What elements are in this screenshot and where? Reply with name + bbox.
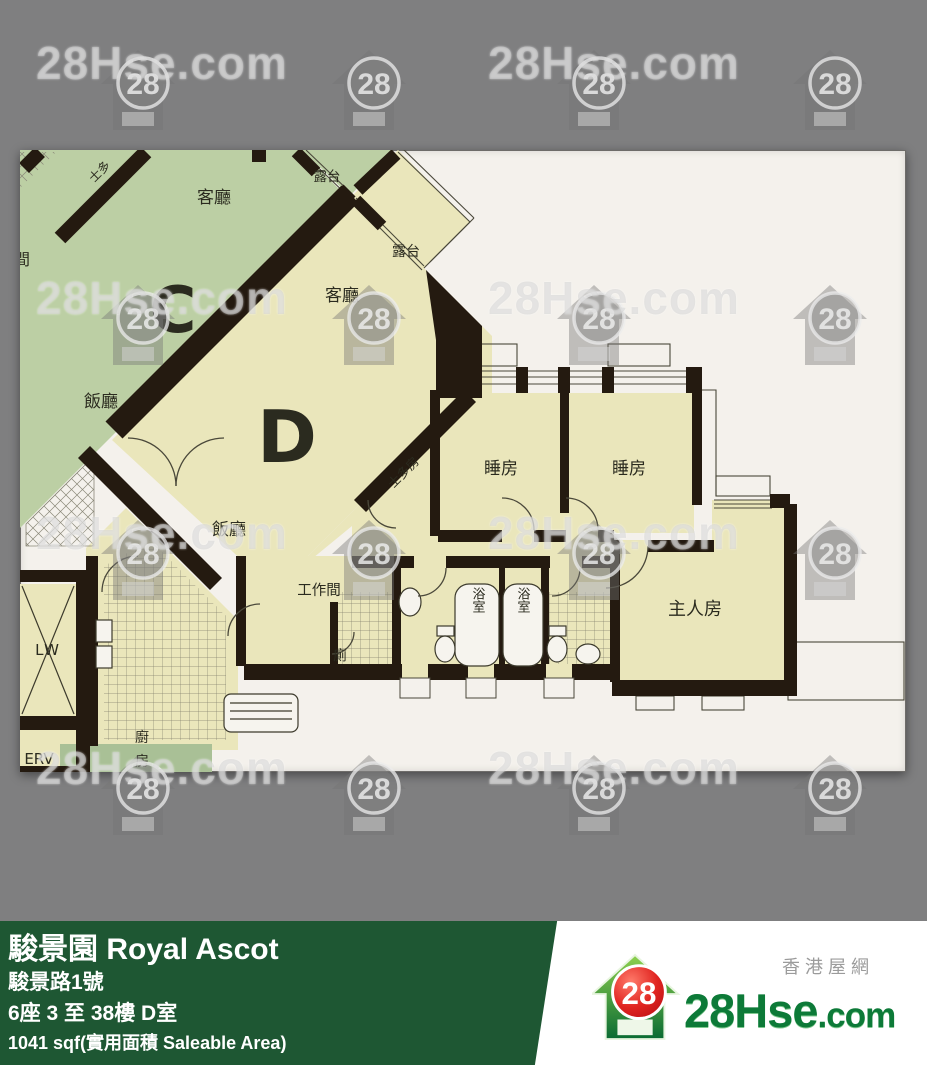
- label-master: 主人房: [668, 599, 722, 620]
- footer-bar: 駿景園 Royal Ascot 駿景路1號 6座 3 至 38樓 D室 1041…: [0, 921, 927, 1065]
- label-workroom: 工作間: [297, 582, 341, 599]
- label-lift: LW: [35, 641, 61, 659]
- 28hse-house-icon: 28: [592, 951, 682, 1043]
- sink-2: [576, 644, 600, 664]
- label-d-dining: 飯廳: [212, 520, 246, 540]
- svg-text:28: 28: [818, 773, 851, 806]
- 28hse-wordmark: 28Hse.com: [684, 983, 895, 1038]
- label-c-partial: 間: [20, 250, 30, 269]
- 28hse-tld: .com: [818, 996, 896, 1035]
- label-d-living: 客廳: [325, 286, 359, 306]
- sink-1: [399, 588, 421, 616]
- ac-platform: [224, 694, 298, 732]
- kitchen-unit-2: [96, 646, 112, 668]
- watermark-text: 28Hse.com: [488, 36, 740, 90]
- svg-text:28: 28: [582, 68, 615, 101]
- toilet-1-tank: [437, 626, 454, 636]
- 28hse-tagline: 香港屋網: [782, 953, 874, 979]
- label-c-living: 客廳: [197, 188, 231, 208]
- svg-text:28: 28: [357, 68, 390, 101]
- label-bedroom-1: 睡房: [484, 459, 518, 479]
- watermark-house-icon: 28: [100, 48, 176, 132]
- label-bath-1: 浴室: [470, 587, 486, 613]
- label-service: ERV: [24, 750, 54, 768]
- floorplan-svg: 士多 客廳 露台 C 飯廳 間 露台 客廳 D 飯廳 士多房 睡房 睡房 主人房…: [20, 150, 906, 772]
- 28hse-name: 28Hse: [684, 984, 818, 1037]
- window-sills: [400, 664, 574, 698]
- kitchen-unit-1: [96, 620, 112, 642]
- page: 士多 客廳 露台 C 飯廳 間 露台 客廳 D 飯廳 士多房 睡房 睡房 主人房…: [0, 0, 927, 1065]
- block-floor-unit: 6座 3 至 38樓 D室: [8, 997, 177, 1027]
- label-c-balcony: 露台: [314, 169, 341, 185]
- svg-text:28: 28: [357, 773, 390, 806]
- watermark-house-icon: 28: [331, 48, 407, 132]
- label-c-dining: 飯廳: [84, 392, 118, 412]
- label-kitchen: 廚: [135, 729, 149, 746]
- svg-text:28: 28: [126, 773, 159, 806]
- toilet-2-tank: [549, 626, 566, 636]
- label-bedroom-2: 睡房: [612, 459, 646, 479]
- saleable-area: 1041 sqf(實用面積 Saleable Area): [8, 1029, 286, 1055]
- label-d-balcony: 露台: [392, 244, 420, 260]
- watermark-text: 28Hse.com: [36, 36, 288, 90]
- label-toilet: 廁: [333, 647, 347, 664]
- 28hse-logo[interactable]: 28 28Hse.com 香港屋網: [592, 947, 922, 1057]
- svg-text:28: 28: [818, 68, 851, 101]
- svg-text:28: 28: [126, 68, 159, 101]
- floorplan-image: 士多 客廳 露台 C 飯廳 間 露台 客廳 D 飯廳 士多房 睡房 睡房 主人房…: [20, 150, 906, 772]
- estate-name: 駿景園 Royal Ascot: [8, 924, 279, 968]
- watermark-house-icon: 28: [556, 48, 632, 132]
- label-unit-c: C: [150, 274, 197, 348]
- watermark-house-icon: 28: [792, 48, 868, 132]
- toilet-2: [547, 636, 567, 662]
- svg-text:28: 28: [582, 773, 615, 806]
- estate-address: 駿景路1號: [8, 966, 104, 996]
- label-unit-d: D: [257, 395, 317, 479]
- svg-text:28: 28: [622, 976, 657, 1011]
- label-kitchen-2: 房: [135, 754, 149, 770]
- label-bath-2: 浴室: [515, 587, 531, 613]
- toilet-1: [435, 636, 455, 662]
